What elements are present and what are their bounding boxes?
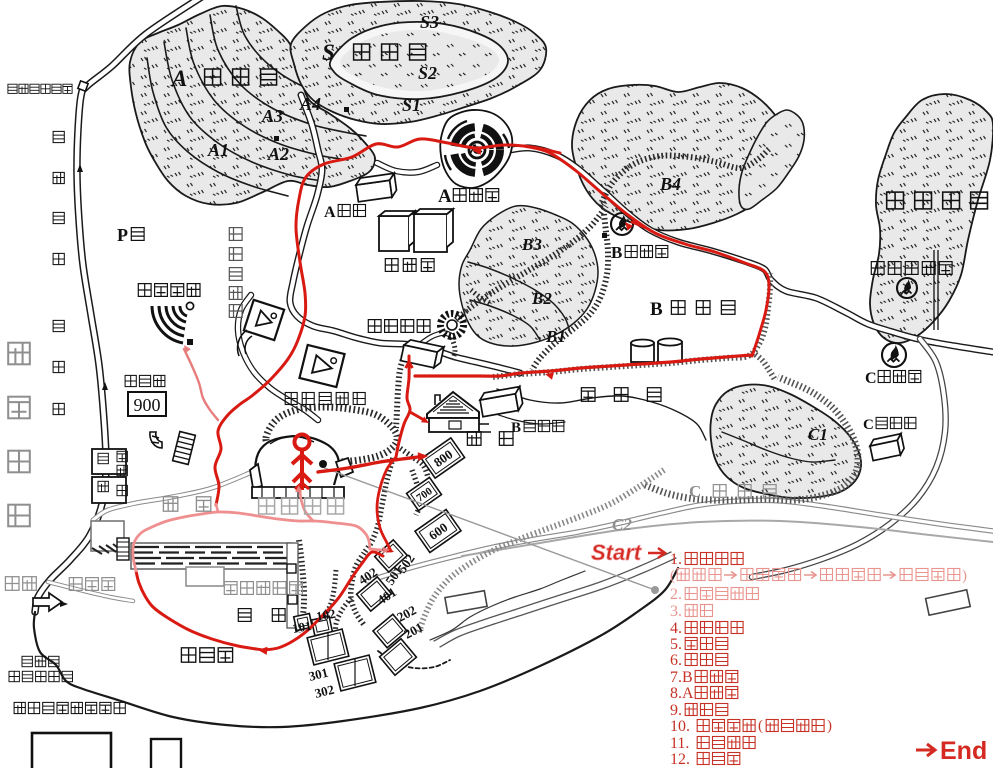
svg-text:4.: 4. (670, 620, 682, 637)
svg-text:): ) (827, 718, 832, 734)
svg-text:): ) (962, 568, 967, 584)
svg-text:B3: B3 (521, 235, 542, 254)
svg-text:C: C (863, 417, 874, 433)
svg-text:B2: B2 (531, 289, 552, 308)
svg-text:12.: 12. (670, 751, 690, 768)
svg-text:B: B (611, 243, 622, 262)
svg-text:2.: 2. (670, 586, 682, 603)
svg-text:7.B: 7.B (670, 669, 693, 686)
svg-text:B: B (511, 420, 521, 436)
svg-text:(: ( (758, 718, 763, 734)
svg-text:A3: A3 (261, 106, 283, 126)
svg-text:6.: 6. (670, 652, 682, 669)
svg-text:S1: S1 (402, 95, 421, 115)
svg-text:B: B (650, 299, 663, 320)
svg-text:C1: C1 (808, 425, 828, 444)
svg-text:1.: 1. (670, 551, 682, 568)
svg-text:C2: C2 (612, 515, 632, 534)
svg-text:C: C (865, 370, 877, 387)
svg-text:11.: 11. (670, 735, 689, 752)
svg-text:C: C (689, 482, 701, 501)
svg-text:S3: S3 (420, 12, 439, 32)
svg-text:S2: S2 (418, 63, 437, 83)
svg-text:10.: 10. (670, 718, 690, 735)
svg-text:900: 900 (134, 395, 161, 415)
svg-text:8.A: 8.A (670, 685, 694, 702)
svg-text:5.: 5. (670, 636, 682, 653)
svg-text:A: A (438, 186, 452, 207)
svg-text:A: A (170, 66, 187, 91)
svg-text:End: End (940, 737, 987, 765)
svg-text:B4: B4 (659, 174, 681, 194)
svg-text:A4: A4 (299, 94, 321, 114)
svg-text:A2: A2 (267, 144, 289, 164)
svg-text:Start: Start (591, 540, 643, 565)
svg-text:S: S (322, 40, 335, 65)
svg-text:9.: 9. (670, 702, 682, 719)
svg-text:A: A (324, 204, 336, 221)
svg-text:A1: A1 (207, 140, 229, 160)
svg-text:B1: B1 (545, 327, 566, 346)
svg-text:3.: 3. (670, 603, 682, 620)
svg-text:P: P (117, 225, 128, 245)
svg-text:(: ( (670, 568, 675, 584)
